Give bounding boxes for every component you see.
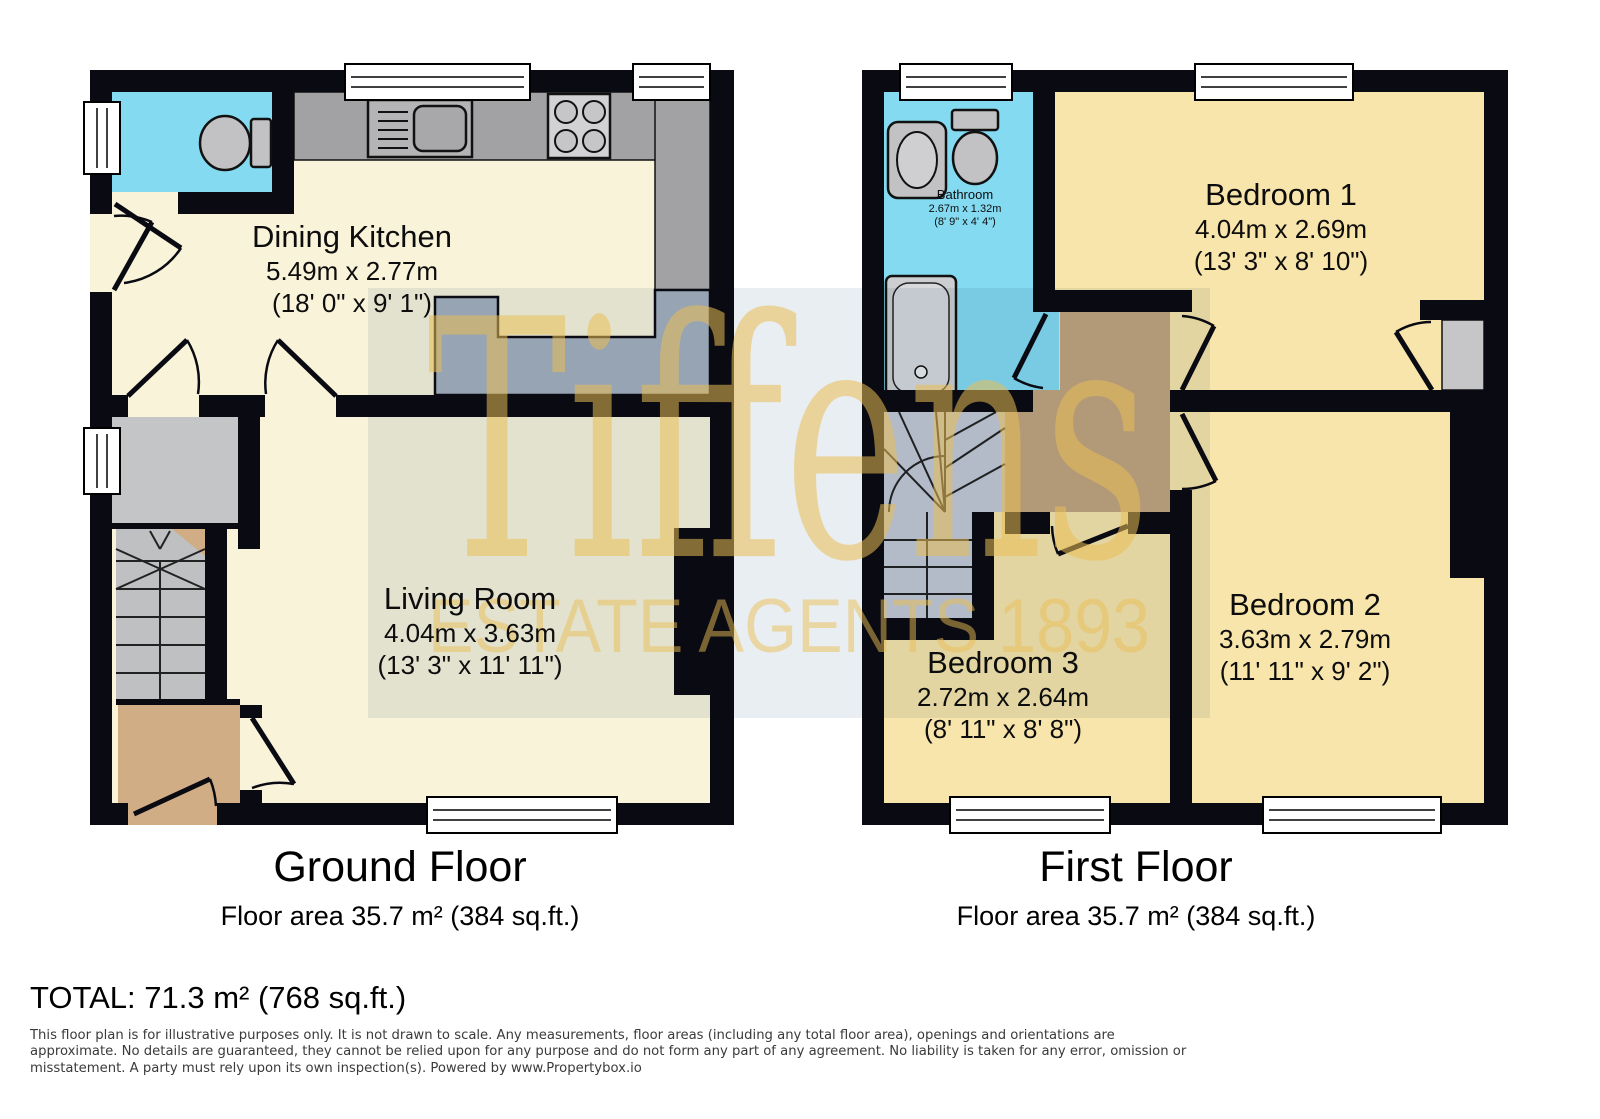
total-area: TOTAL: 71.3 m² (768 sq.ft.) (30, 980, 406, 1016)
chimney-breast-first (1450, 412, 1484, 578)
caption-ground-floor: Ground Floor Floor area 35.7 m² (384 sq.… (221, 843, 580, 932)
watermark-brand: Tiffens (427, 250, 1151, 634)
caption-first-floor: First Floor Floor area 35.7 m² (384 sq.f… (957, 843, 1316, 932)
room-dimensions-imperial: (8' 11" x 8' 8") (917, 714, 1089, 746)
room-name: Bedroom 3 (917, 644, 1089, 682)
room-name: Living Room (378, 580, 563, 618)
room-name: Bedroom 2 (1219, 586, 1391, 624)
label-bedroom-2: Bedroom 2 3.63m x 2.79m (11' 11" x 9' 2"… (1219, 586, 1391, 687)
hob-icon (548, 94, 610, 158)
room-dimensions-metric: 4.04m x 2.69m (1194, 214, 1368, 246)
room-dimensions-imperial: (18' 0" x 9' 1") (252, 288, 452, 320)
room-name: Dining Kitchen (252, 218, 452, 256)
room-name: Bedroom 1 (1194, 176, 1368, 214)
kitchen-sink-icon (368, 100, 472, 157)
front-door-opening (128, 803, 217, 825)
room-dimensions-metric: 3.63m x 2.79m (1219, 624, 1391, 656)
disclaimer-line: approximate. No details are guaranteed, … (30, 1044, 1186, 1060)
toilet-icon (200, 116, 271, 170)
floor-name: First Floor (957, 843, 1316, 892)
room-dimensions-imperial: (8' 9" x 4' 4") (929, 216, 1002, 229)
room-dimensions-imperial: (11' 11" x 9' 2") (1219, 656, 1391, 688)
disclaimer-line: misstatement. A party must rely upon its… (30, 1061, 1186, 1077)
label-living-room: Living Room 4.04m x 3.63m (13' 3" x 11' … (378, 580, 563, 681)
bathroom-toilet-icon (952, 110, 998, 184)
room-dimensions-imperial: (13' 3" x 11' 11") (378, 650, 563, 682)
room-dimensions-metric: 2.67m x 1.32m (929, 203, 1002, 216)
room-name: Bathroom (929, 187, 1002, 203)
disclaimer-text: This floor plan is for illustrative purp… (30, 1028, 1186, 1077)
floor-plan-drawing: Tiffens ESTATE AGENTS 1893 (0, 0, 1600, 940)
label-bedroom-3: Bedroom 3 2.72m x 2.64m (8' 11" x 8' 8") (917, 644, 1089, 745)
side-door-opening (90, 214, 112, 292)
floor-area: Floor area 35.7 m² (384 sq.ft.) (221, 901, 580, 932)
built-in-cupboard (1442, 320, 1484, 390)
room-dimensions-imperial: (13' 3" x 8' 10") (1194, 246, 1368, 278)
room-dimensions-metric: 4.04m x 3.63m (378, 618, 563, 650)
floor-name: Ground Floor (221, 843, 580, 892)
room-dimensions-metric: 2.72m x 2.64m (917, 682, 1089, 714)
entrance-hall (118, 705, 240, 803)
label-bathroom: Bathroom 2.67m x 1.32m (8' 9" x 4' 4") (929, 187, 1002, 230)
disclaimer-line: This floor plan is for illustrative purp… (30, 1028, 1186, 1044)
label-dining-kitchen: Dining Kitchen 5.49m x 2.77m (18' 0" x 9… (252, 218, 452, 319)
label-bedroom-1: Bedroom 1 4.04m x 2.69m (13' 3" x 8' 10"… (1194, 176, 1368, 277)
floor-area: Floor area 35.7 m² (384 sq.ft.) (957, 901, 1316, 932)
staircase-ground (116, 529, 205, 701)
store-room (112, 417, 238, 525)
room-dimensions-metric: 5.49m x 2.77m (252, 256, 452, 288)
